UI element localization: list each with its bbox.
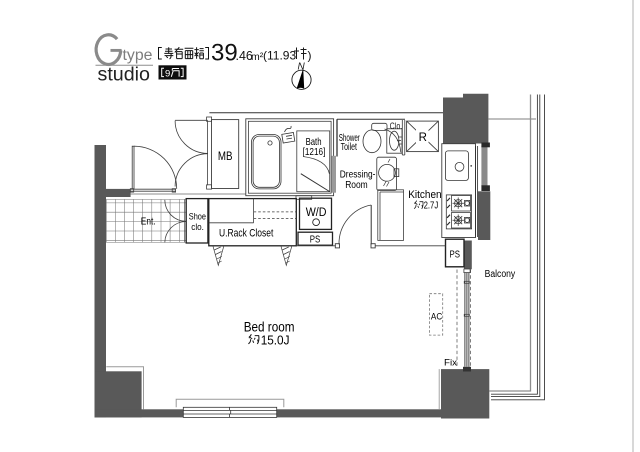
svg-text:Dressing-: Dressing- <box>340 169 376 180</box>
svg-text:[1216]: [1216] <box>303 147 326 158</box>
svg-text:PS: PS <box>310 234 321 245</box>
svg-text:PS: PS <box>450 250 461 261</box>
svg-text:clo.: clo. <box>191 221 204 232</box>
svg-text:2.7J: 2.7J <box>424 201 439 212</box>
svg-text:15.0J: 15.0J <box>261 333 290 348</box>
svg-text:Toilet: Toilet <box>341 142 358 153</box>
svg-text:W/D: W/D <box>306 207 327 219</box>
svg-text:type: type <box>123 47 153 64</box>
svg-text:39: 39 <box>211 40 238 67</box>
svg-text:Balcony: Balcony <box>485 269 516 280</box>
svg-text:(11.93: (11.93 <box>263 49 296 63</box>
svg-text:9: 9 <box>165 68 170 79</box>
svg-text:Ent.: Ent. <box>141 216 156 227</box>
svg-text:Fix: Fix <box>444 357 457 368</box>
svg-text:studio: studio <box>98 65 151 86</box>
svg-text:Room: Room <box>345 180 368 191</box>
svg-text:Kitchen: Kitchen <box>408 189 441 201</box>
svg-text:R: R <box>419 132 427 144</box>
svg-text:N: N <box>298 62 306 73</box>
svg-text:Clo.: Clo. <box>390 121 403 131</box>
svg-text:): ) <box>308 49 312 63</box>
svg-text:U.Rack Closet: U.Rack Closet <box>219 228 273 240</box>
svg-text:MB: MB <box>218 149 233 163</box>
svg-text:AC: AC <box>431 311 442 322</box>
svg-text:m²: m² <box>251 51 264 63</box>
